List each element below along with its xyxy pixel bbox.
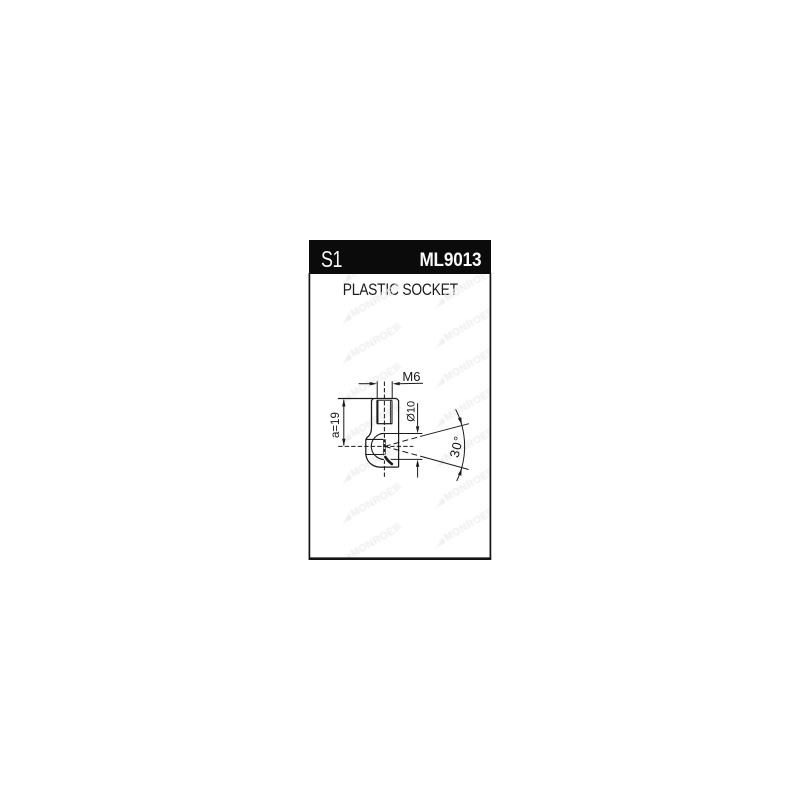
svg-text:M6: M6 (402, 369, 420, 384)
svg-text:a=19: a=19 (330, 412, 342, 438)
svg-text:30°: 30° (447, 434, 467, 459)
svg-text:Ø10: Ø10 (406, 401, 418, 422)
